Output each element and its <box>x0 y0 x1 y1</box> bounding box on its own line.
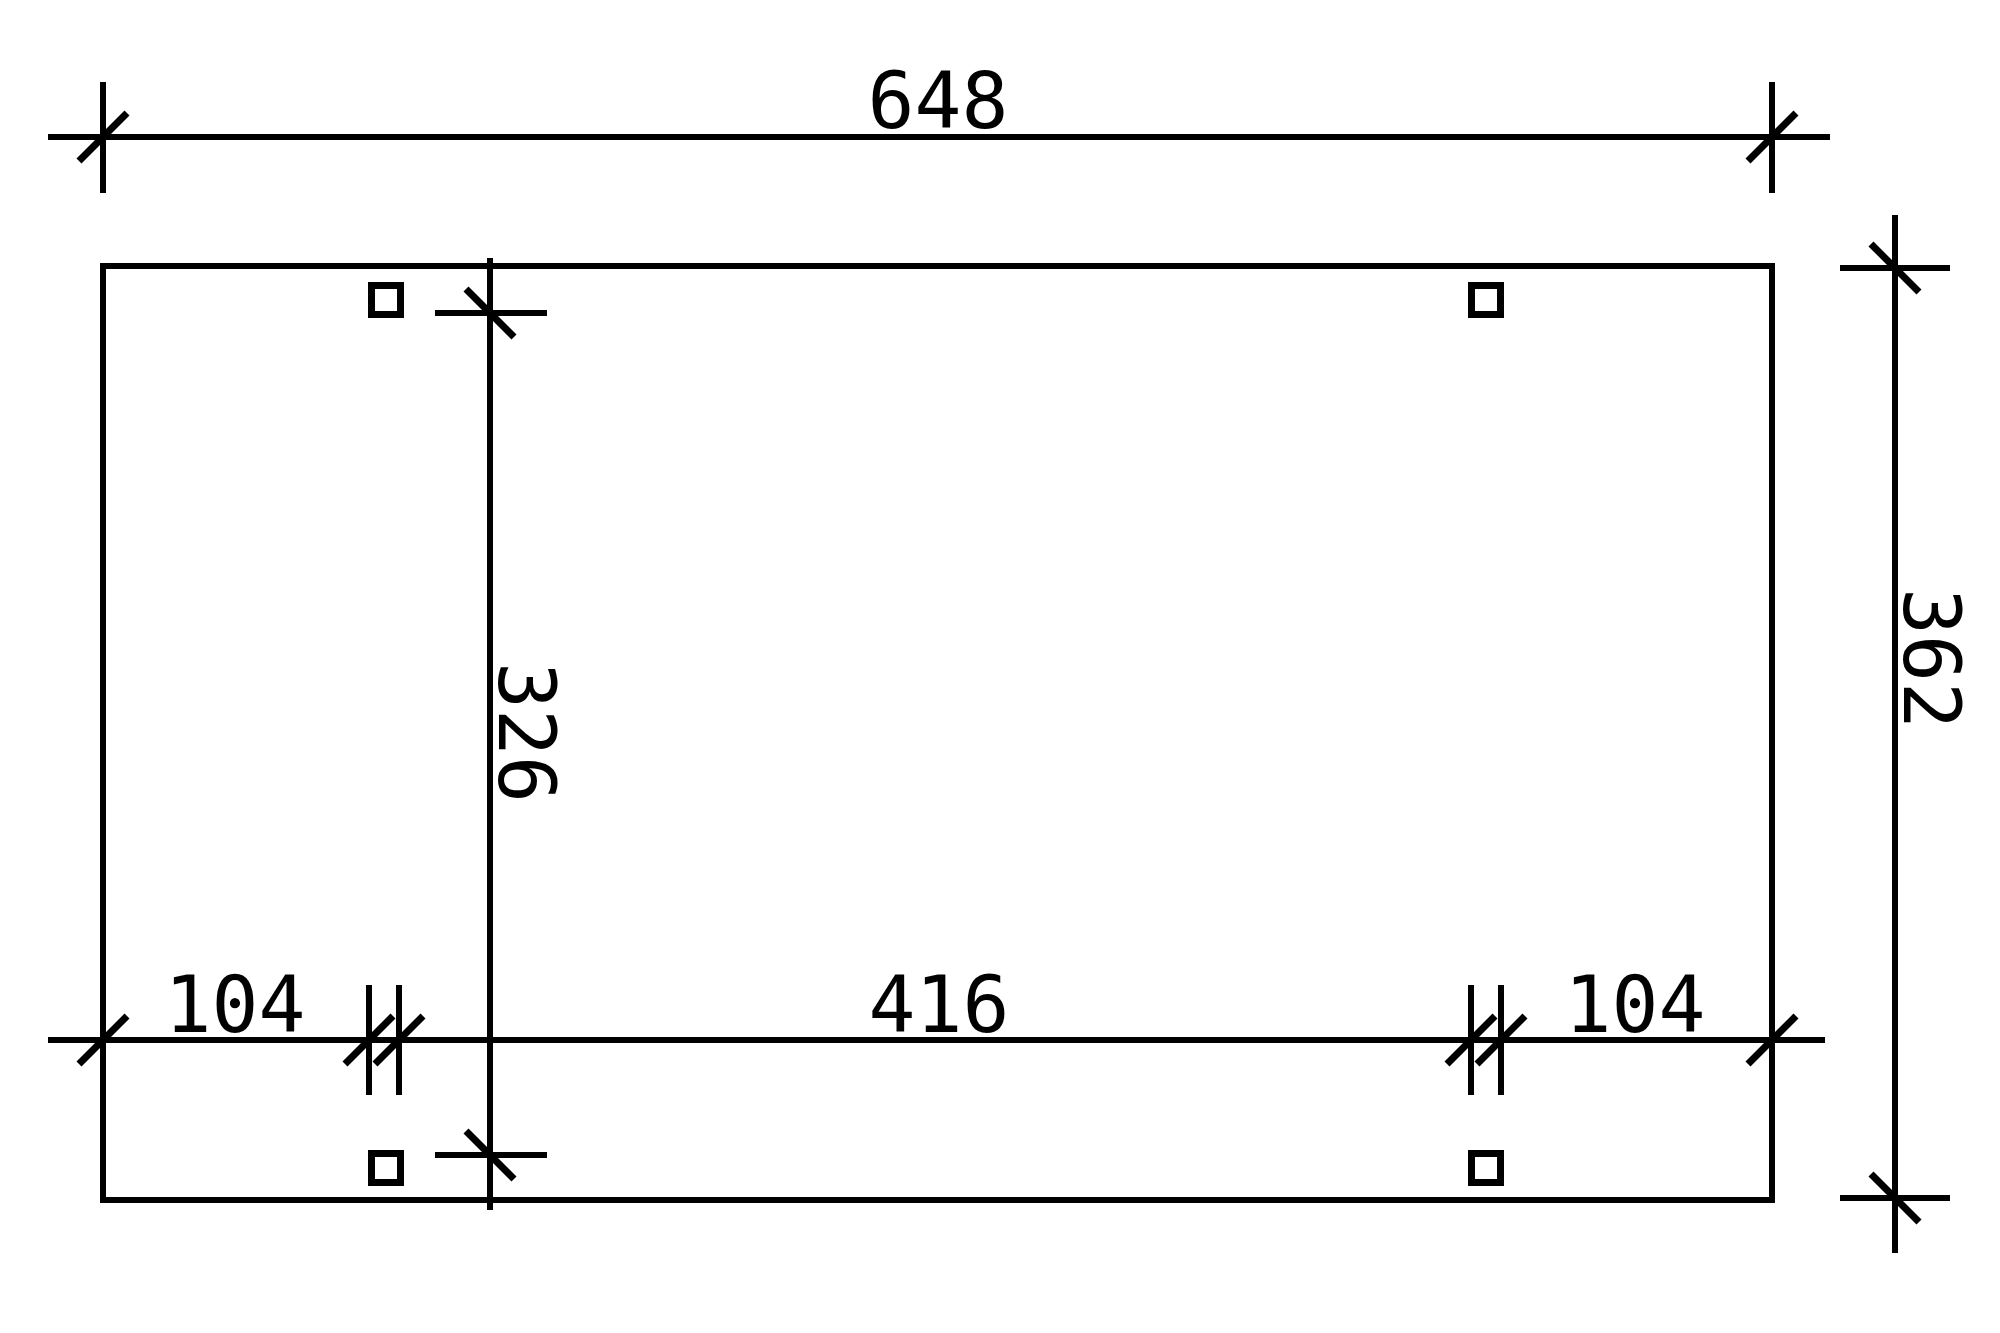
dimension-bottom-chain: 104 416 104 <box>48 960 1825 1095</box>
dimension-label-bottom-center: 416 <box>869 960 1010 1050</box>
dimension-inner-326: 326 <box>435 258 571 1210</box>
dimension-label-bottom-right: 104 <box>1565 960 1706 1050</box>
carport-floor-plan: 648 362 326 <box>0 0 2000 1333</box>
dimension-right-362: 362 <box>1840 215 1976 1253</box>
drawing-canvas: 648 362 326 <box>0 0 2000 1333</box>
post-top-left-icon <box>372 286 401 315</box>
post-bottom-right-icon <box>1472 1154 1501 1183</box>
dimension-label-right: 362 <box>1886 588 1976 729</box>
dimension-top-648: 648 <box>48 56 1830 193</box>
post-top-right-icon <box>1472 286 1501 315</box>
dimension-label-inner: 326 <box>481 662 571 803</box>
post-bottom-left-icon <box>372 1154 401 1183</box>
dimension-label-bottom-left: 104 <box>165 960 306 1050</box>
dimension-label-top: 648 <box>868 56 1009 146</box>
